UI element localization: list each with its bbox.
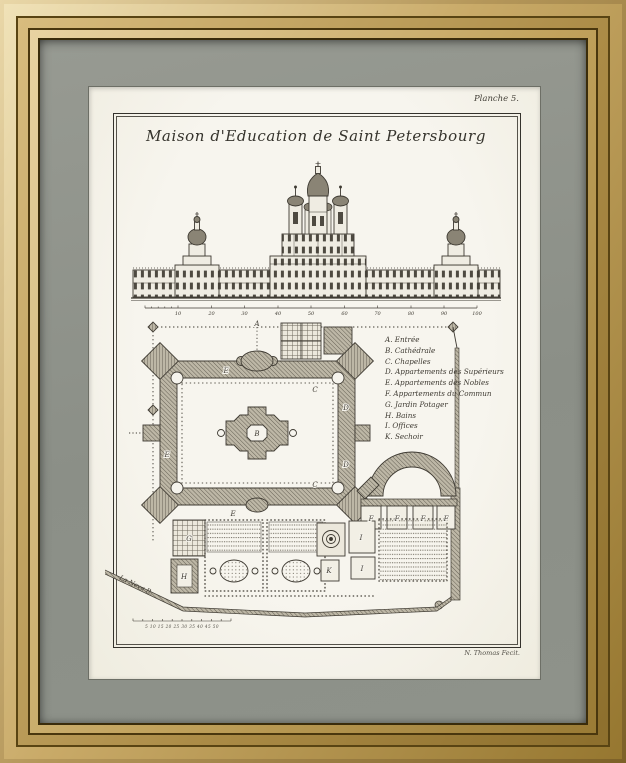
legend-item: H. Bains — [385, 411, 504, 422]
engraver-signature: N. Thomas Fecit. — [464, 649, 520, 657]
legend-item: A. Entrée — [385, 335, 504, 346]
plan-label-chapelle: C — [312, 481, 318, 489]
plan-label-superieurs: D — [342, 461, 349, 469]
mat-board: Planche 5. Maison d'Education de Saint P… — [40, 40, 586, 723]
plan-label-offices: I — [359, 534, 363, 542]
plan-label-cathedrale: B — [253, 430, 259, 438]
elevation-drawing: 10 20 30 40 50 60 70 80 90 100 — [125, 160, 507, 318]
legend-item: I. Offices — [385, 421, 504, 432]
plan-label-entree: A — [253, 320, 259, 328]
plan-label-sechoir: K — [325, 567, 332, 575]
legend-item: F. Appartements du Commun — [385, 389, 504, 400]
end-pavilion-left — [175, 212, 219, 297]
framed-print-photo: Planche 5. Maison d'Education de Saint P… — [0, 0, 626, 763]
plan-legend: A. Entrée B. Cathédrale C. Chapelles D. … — [385, 335, 504, 443]
gardens — [171, 519, 447, 596]
plan-label-nobles: E — [222, 367, 228, 375]
plan-label-chapelle: C — [312, 386, 318, 394]
plan-label-nobles: E — [229, 510, 235, 518]
central-cathedral — [270, 162, 366, 298]
river-label: La Neva R. — [117, 573, 154, 597]
end-pavilion-right — [434, 212, 478, 297]
legend-item: G. Jardin Potager — [385, 400, 504, 411]
plan-scale-bar — [133, 619, 231, 622]
legend-item: C. Chapelles — [385, 357, 504, 368]
plan-label-offices: I — [360, 565, 364, 573]
plate-number: Planche 5. — [474, 94, 519, 104]
elevation-facade — [131, 162, 501, 301]
legend-item: D. Appartements des Supérieurs — [385, 367, 504, 378]
plan-label-bains: H — [180, 573, 188, 581]
print-title: Maison d'Education de Saint Petersbourg — [113, 127, 519, 145]
plan-label-superieurs: D — [342, 404, 349, 412]
legend-item: K. Sechoir — [385, 432, 504, 443]
legend-item: E. Appartements des Nobles — [385, 378, 504, 389]
plan-scale-numbers: 5 10 15 20 25 30 35 40 45 50 — [145, 624, 219, 629]
plan-label-nobles: E — [163, 451, 169, 459]
plan-label-potager: G — [186, 535, 192, 543]
legend-item: B. Cathédrale — [385, 346, 504, 357]
print-paper: Planche 5. Maison d'Education de Saint P… — [89, 87, 540, 679]
